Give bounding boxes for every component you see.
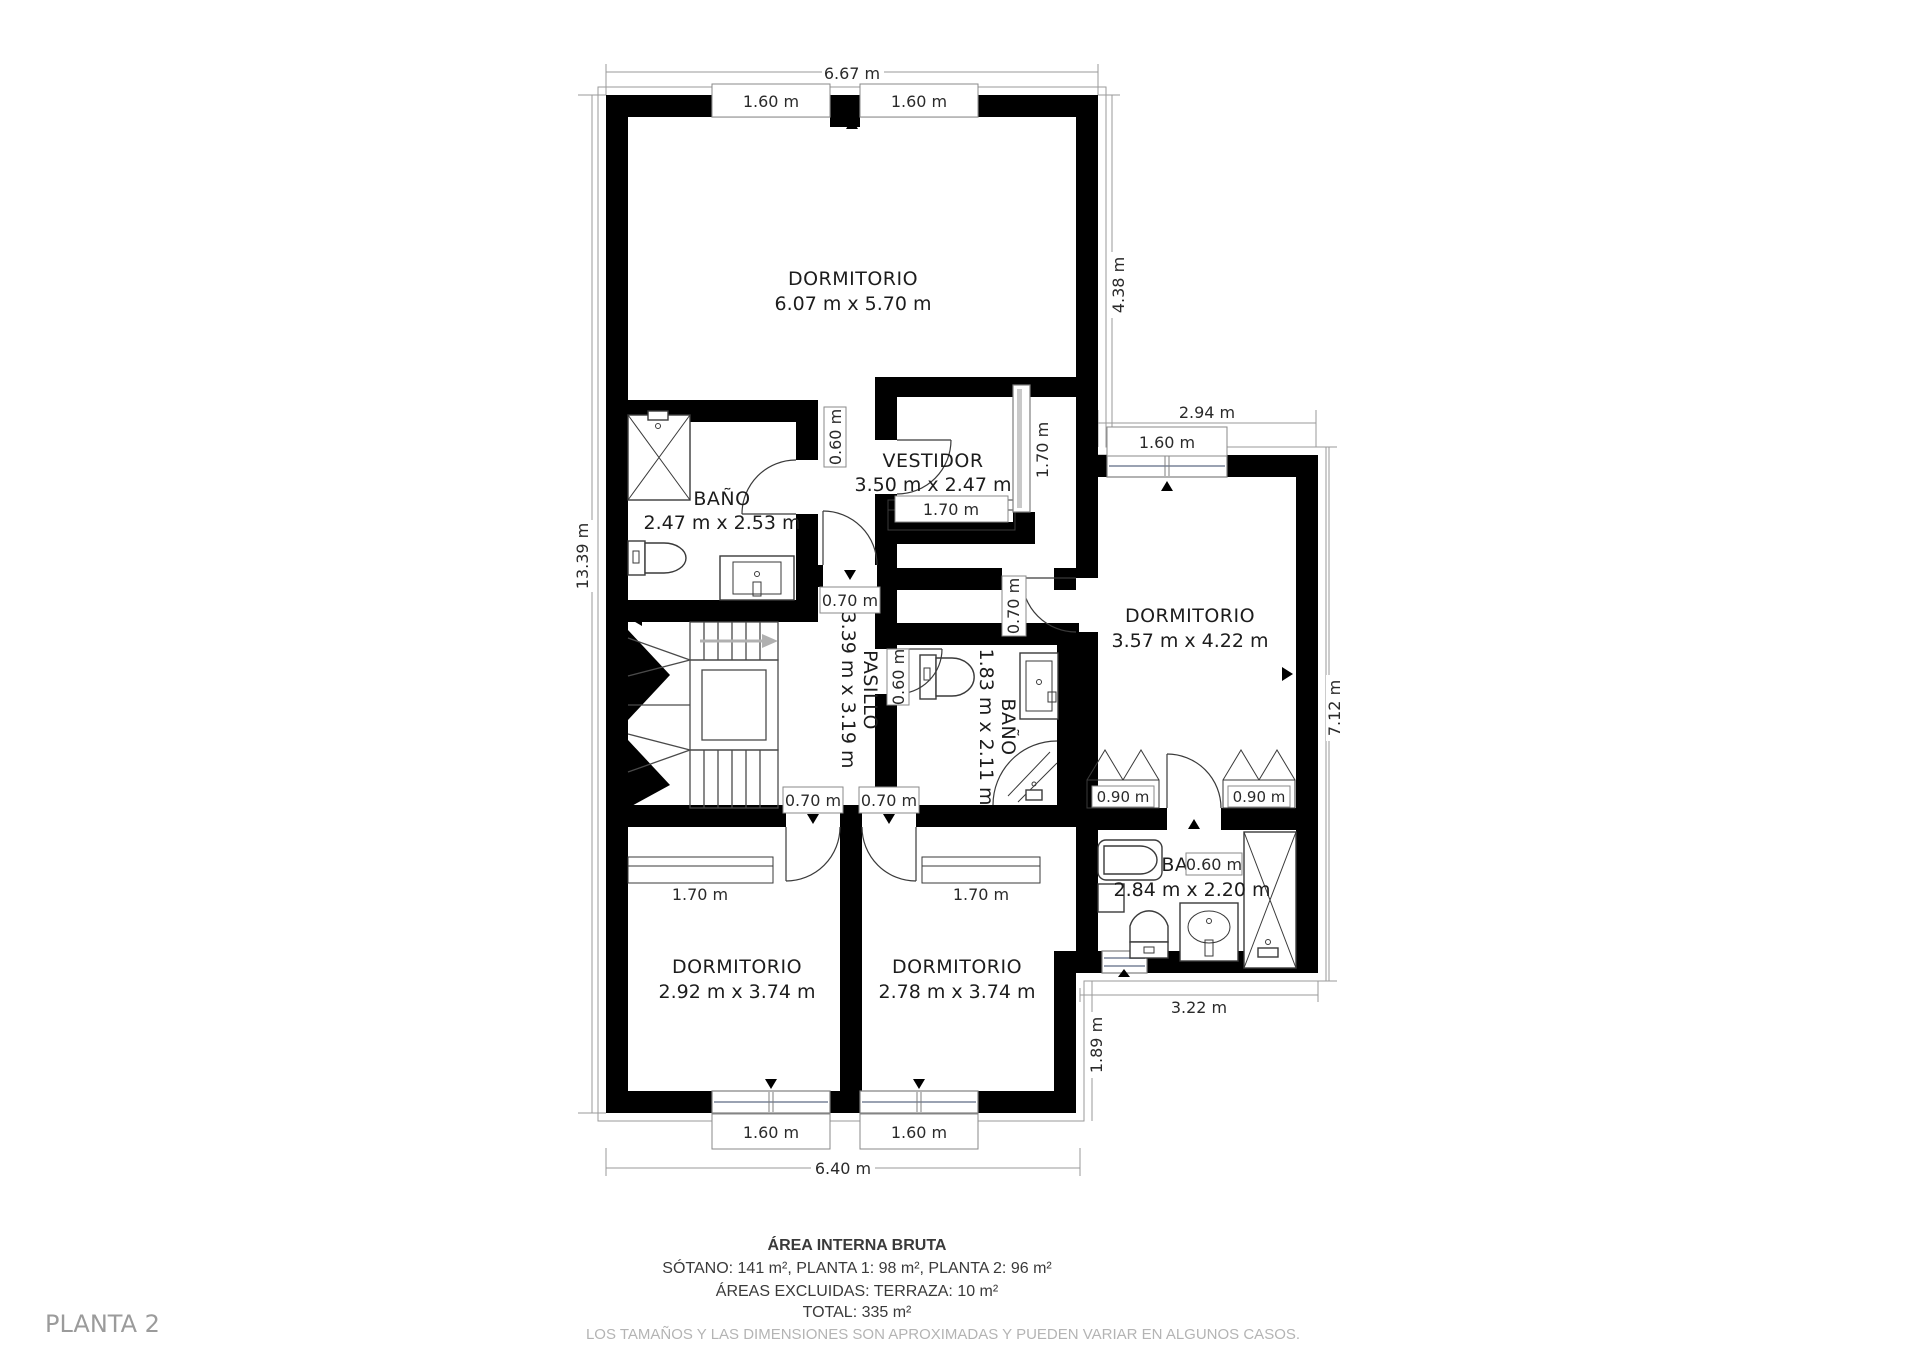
door-corridor bbox=[823, 511, 877, 565]
plan-floor-label: PLANTA 2 bbox=[45, 1310, 160, 1338]
room-label-dorm-top: DORMITORIO bbox=[788, 268, 918, 290]
room-dims-dorm-br: 2.78 m x 3.74 m bbox=[878, 981, 1035, 1003]
closet-bottom-left bbox=[628, 857, 773, 883]
label-bano1-door: 0.60 m bbox=[826, 409, 845, 465]
dim-right-lower: 1.89 m bbox=[1087, 1017, 1106, 1073]
room-dims-bano1: 2.47 m x 2.53 m bbox=[643, 512, 800, 534]
window-bottom-left bbox=[712, 1091, 830, 1113]
dim-right-upper: 4.38 m bbox=[1109, 257, 1128, 313]
sink-icon bbox=[1020, 653, 1058, 719]
footer-title: ÁREA INTERNA BRUTA bbox=[768, 1235, 947, 1254]
label-bano3-shower: 0.60 m bbox=[1186, 855, 1242, 874]
label-closet-br: 1.70 m bbox=[953, 885, 1009, 904]
room-dims-bano2: 1.83 m x 2.11 m bbox=[975, 648, 997, 805]
room-label-bano1: BAÑO bbox=[693, 487, 750, 510]
label-closet-bl: 1.70 m bbox=[672, 885, 728, 904]
dim-win-bottom-left: 1.60 m bbox=[743, 1123, 799, 1142]
label-door-br: 0.70 m bbox=[861, 791, 917, 810]
toilet-icon bbox=[920, 655, 974, 699]
dim-win-top-right: 1.60 m bbox=[891, 92, 947, 111]
room-label-bano2: BAÑO bbox=[997, 698, 1020, 755]
room-label-dorm-bl: DORMITORIO bbox=[672, 956, 802, 978]
window-wing bbox=[1107, 455, 1227, 477]
label-closet-wing-right: 0.90 m bbox=[1233, 788, 1286, 806]
label-vestidor-slider: 1.70 m bbox=[1033, 422, 1052, 478]
sliding-door bbox=[1013, 385, 1030, 512]
label-wing-door: 0.70 m bbox=[1004, 578, 1023, 634]
bano3-shower-label-group: 0.60 m bbox=[1186, 853, 1242, 875]
room-dims-vestidor: 3.50 m x 2.47 m bbox=[854, 474, 1011, 496]
dim-win-top-left: 1.60 m bbox=[743, 92, 799, 111]
label-vestidor-wardrobe: 1.70 m bbox=[923, 500, 979, 519]
floor-plan-page: DORMITORIO 6.07 m x 5.70 m BAÑO 2.47 m x… bbox=[0, 0, 1920, 1357]
room-dims-dorm-bl: 2.92 m x 3.74 m bbox=[658, 981, 815, 1003]
label-closet-wing-left: 0.90 m bbox=[1097, 788, 1150, 806]
footer-note: LOS TAMAÑOS Y LAS DIMENSIONES SON APROXI… bbox=[586, 1326, 1300, 1343]
room-label-vestidor: VESTIDOR bbox=[882, 450, 983, 472]
shower-icon bbox=[628, 411, 690, 500]
closet-bottom-right bbox=[922, 857, 1040, 883]
dim-left-height: 13.39 m bbox=[573, 523, 592, 589]
room-dims-bano3: 2.84 m x 2.20 m bbox=[1113, 879, 1270, 901]
bathtub-icon bbox=[1098, 840, 1162, 912]
sink-icon bbox=[720, 556, 794, 600]
window-bottom-right bbox=[860, 1091, 978, 1113]
dim-wing-bottom: 3.22 m bbox=[1171, 998, 1227, 1017]
label-corridor-door: 0.70 m bbox=[822, 591, 878, 610]
sink-icon bbox=[1180, 903, 1238, 961]
dim-bottom-width: 6.40 m bbox=[815, 1159, 871, 1178]
door-bano3 bbox=[1167, 754, 1221, 808]
footer-total: TOTAL: 335 m² bbox=[803, 1304, 912, 1321]
room-dims-pasillo: 3.39 m x 3.19 m bbox=[837, 611, 859, 768]
room-dims-dorm-top: 6.07 m x 5.70 m bbox=[774, 293, 931, 315]
dim-wing-width: 2.94 m bbox=[1179, 403, 1235, 422]
dim-win-bottom-right: 1.60 m bbox=[891, 1123, 947, 1142]
stairs-direction-arrow-icon bbox=[762, 634, 778, 648]
door-dorm-br bbox=[862, 827, 916, 881]
footer-areas: SÓTANO: 141 m², PLANTA 1: 98 m², PLANTA … bbox=[662, 1258, 1052, 1277]
footer: ÁREA INTERNA BRUTA SÓTANO: 141 m², PLANT… bbox=[586, 1235, 1300, 1343]
footer-excluded: ÁREAS EXCLUIDAS: TERRAZA: 10 m² bbox=[716, 1281, 999, 1300]
dim-win-wing: 1.60 m bbox=[1139, 433, 1195, 452]
label-door-bl: 0.70 m bbox=[785, 791, 841, 810]
label-bano2-door: 0.60 m bbox=[889, 649, 908, 705]
floor-plan-svg: DORMITORIO 6.07 m x 5.70 m BAÑO 2.47 m x… bbox=[0, 0, 1920, 1357]
room-label-dorm-br: DORMITORIO bbox=[892, 956, 1022, 978]
room-label-pasillo: PASILLO bbox=[859, 650, 881, 730]
room-dims-dorm-right: 3.57 m x 4.22 m bbox=[1111, 630, 1268, 652]
door-dorm-bl bbox=[786, 827, 840, 881]
dim-top-width: 6.67 m bbox=[824, 64, 880, 83]
room-label-dorm-right: DORMITORIO bbox=[1125, 605, 1255, 627]
toilet-icon bbox=[1130, 911, 1168, 958]
toilet-icon bbox=[628, 541, 686, 575]
dim-wing-height: 7.12 m bbox=[1325, 680, 1344, 736]
